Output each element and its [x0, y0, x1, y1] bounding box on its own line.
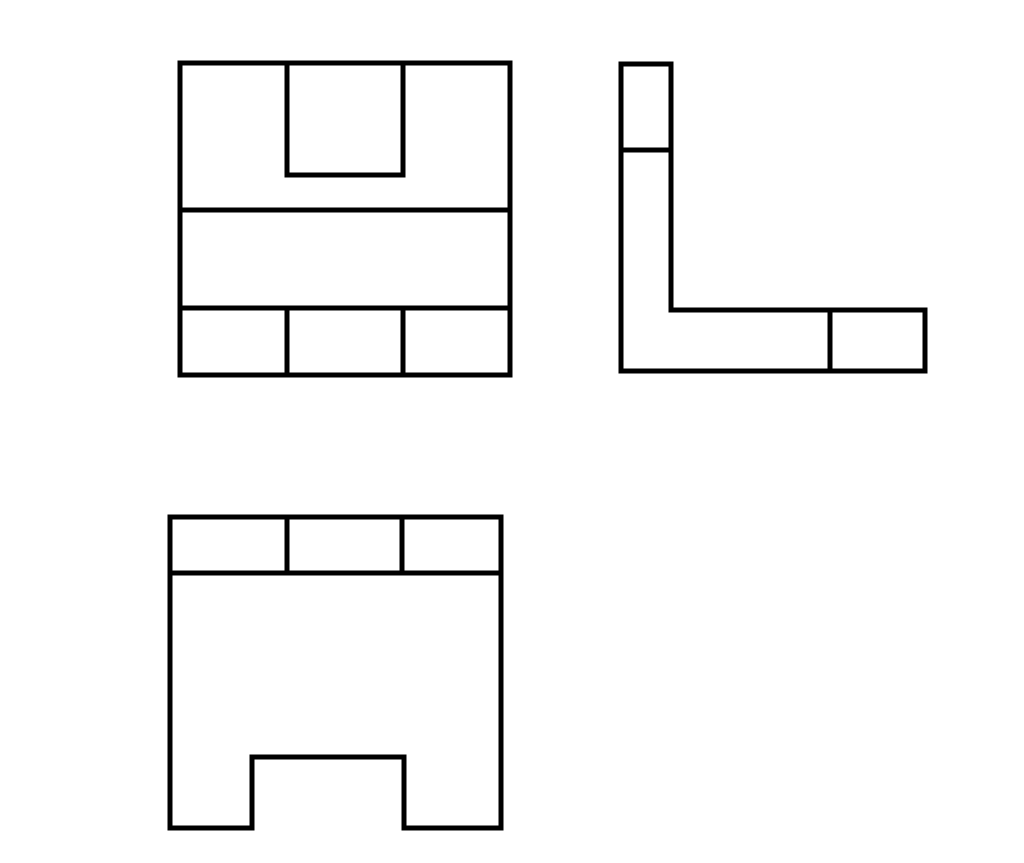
top-view-outline [180, 63, 510, 375]
front-view [170, 517, 501, 828]
side-view-outline [621, 64, 925, 371]
top-view [180, 63, 510, 375]
front-view-outline [170, 517, 501, 828]
right-side-view [621, 64, 925, 371]
orthographic-drawing [0, 0, 1024, 863]
top-view-slot-edge [287, 63, 403, 175]
drawing-canvas [0, 0, 1024, 863]
